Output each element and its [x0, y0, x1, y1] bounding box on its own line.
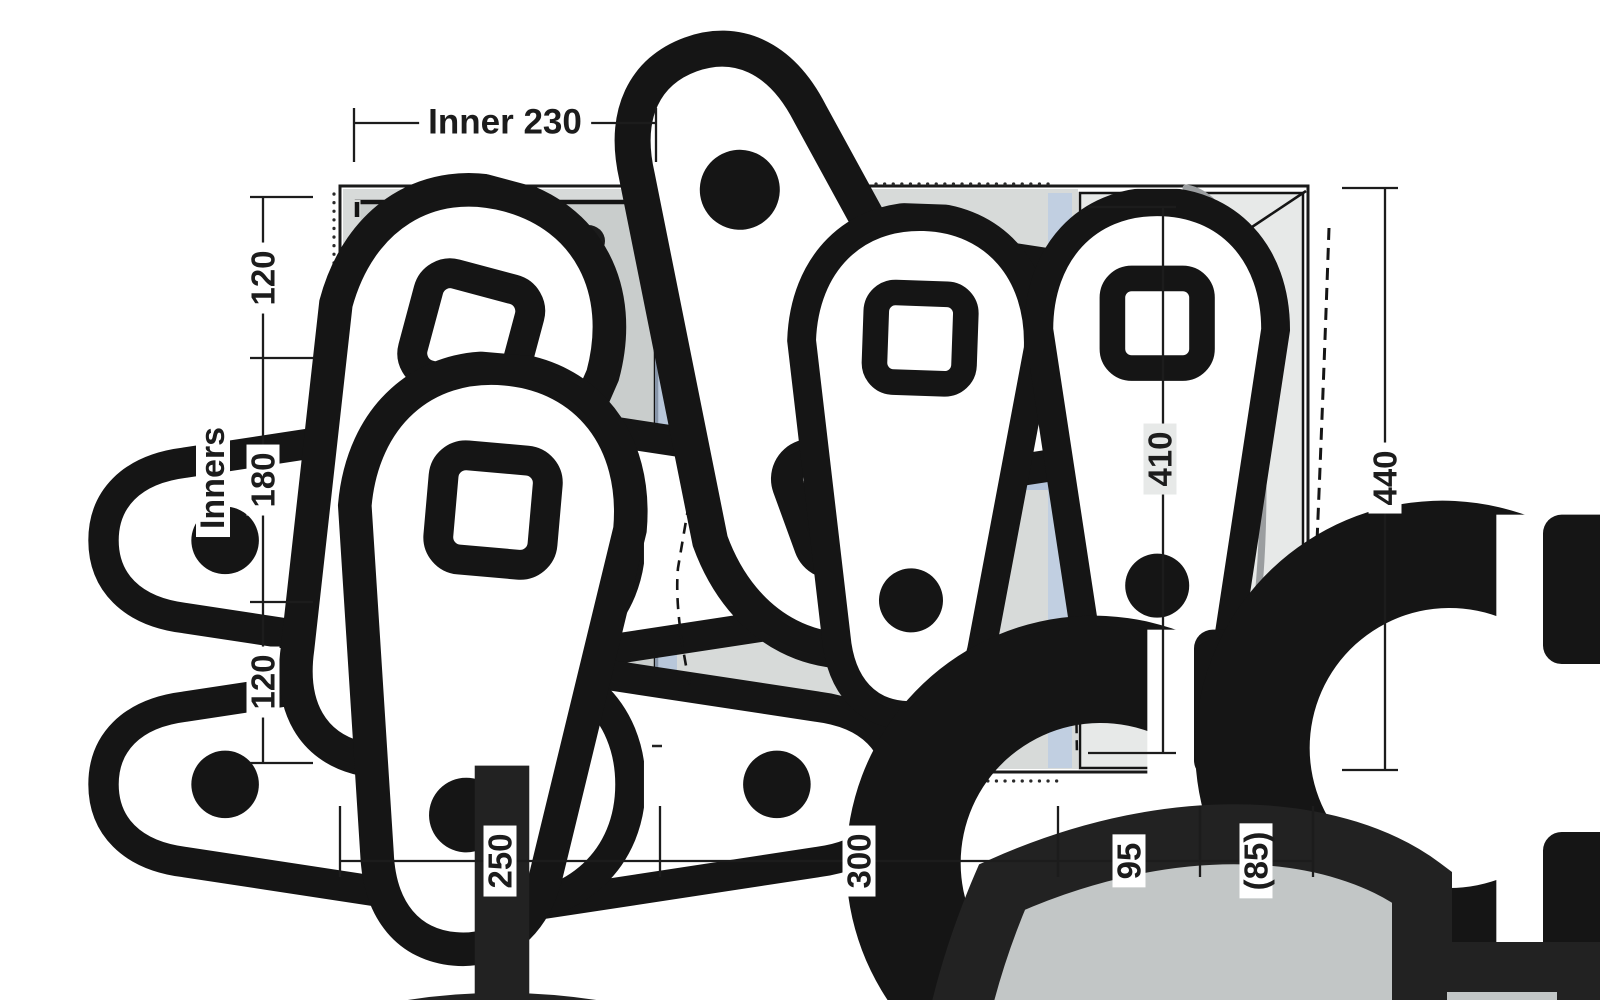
label-bottom-300: 300: [843, 825, 876, 896]
label-inner-section-120-bottom: 120: [247, 646, 280, 717]
label-bottom-95: 95: [1113, 835, 1146, 888]
tent-floorplan-diagram: Inner 230 Inners 120 180 120 250 300 95 …: [0, 0, 1600, 1000]
label-bottom-250: 250: [484, 825, 517, 896]
floorplan-svg: [0, 0, 1600, 1000]
label-bottom-85: (85): [1240, 824, 1273, 899]
label-inners: Inners: [196, 419, 230, 537]
label-inner-section-120-top: 120: [247, 242, 280, 313]
label-inner-section-180: 180: [247, 444, 280, 515]
label-total-depth-440: 440: [1369, 442, 1402, 513]
label-inner-width: Inner 230: [419, 105, 591, 140]
label-porch-depth-410: 410: [1144, 423, 1177, 494]
